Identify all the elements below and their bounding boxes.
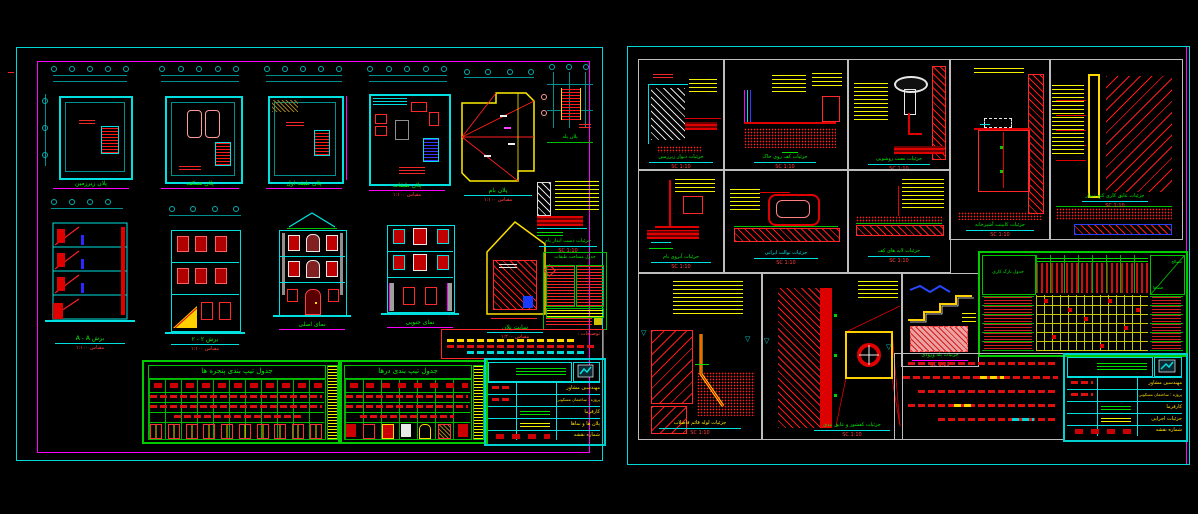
tb-consultant: مهندسین مشاور — [1140, 380, 1182, 386]
floor-line — [387, 277, 453, 278]
wall-hatch — [778, 288, 820, 428]
toilet-inner — [776, 200, 810, 218]
row-line — [148, 412, 324, 413]
caption-underline — [814, 430, 890, 431]
dim-text-row — [150, 395, 322, 398]
mark-cell — [1068, 308, 1072, 312]
layer-hatch — [856, 225, 944, 236]
floor-line — [171, 262, 239, 263]
caption-text: پلان بام — [462, 187, 534, 194]
area-col-group — [546, 265, 575, 307]
slab-line — [744, 122, 836, 124]
tb-line — [556, 382, 557, 440]
window — [437, 255, 449, 270]
layer-line — [856, 223, 942, 224]
corner-cell: مصالح فضاها — [1150, 255, 1185, 295]
caption-underline — [279, 329, 345, 330]
door-box — [201, 302, 213, 320]
mark-cell — [1100, 344, 1104, 348]
caption-text: برش A - A — [53, 335, 127, 342]
caption-underline — [754, 162, 816, 163]
leader-text — [1052, 84, 1084, 154]
caption-underline — [1082, 201, 1148, 202]
detail-soil-pipe: ▽ ▽ جزئیات لوله قائم فاضلاب SC 1:10 — [638, 273, 763, 440]
window-icon — [239, 424, 251, 439]
door-box — [219, 302, 231, 320]
ceiling-line — [651, 242, 671, 243]
tb-line — [1067, 425, 1182, 426]
caption-scale: SC 1:10 — [964, 232, 1036, 238]
room-label-marks — [79, 118, 95, 124]
window-table-title: جدول تیپ بندی پنجره ها — [149, 366, 325, 377]
detail-caption: جزئیات توالت ایرانی SC 1:10 — [752, 250, 820, 266]
water-level-symbol: ▽ — [641, 330, 646, 336]
right-sheet: جزئیات دیوار زیرزمین SC 1:10 جزئیات کف ر… — [627, 46, 1190, 465]
slab — [647, 230, 699, 239]
caption-text: جزئیات کفشور و عایق بندی — [812, 422, 892, 429]
grid-bubbles — [159, 66, 239, 72]
side-window — [287, 289, 298, 302]
leader-text — [962, 312, 976, 322]
frame-line — [648, 84, 649, 144]
mark-cell — [1084, 317, 1088, 321]
detail-kitchen-cabinet: جزئیات کابینت آشپزخانه SC 1:10 — [949, 59, 1051, 240]
row-line — [344, 422, 470, 423]
window-icon — [274, 424, 286, 439]
stair-block — [101, 126, 119, 154]
notes-block — [894, 353, 1065, 440]
grid-bubbles — [42, 98, 47, 158]
tb-drawing: جزئیات اجرایی — [1140, 416, 1182, 422]
caption-underline — [868, 256, 930, 257]
furniture — [375, 126, 387, 136]
caption-scale: SC 1:10 — [752, 260, 820, 266]
title-cell-text — [1097, 362, 1147, 370]
door-icon — [382, 424, 394, 439]
consultant-logo-icon — [1155, 358, 1179, 374]
cabinet-door-split — [1003, 132, 1004, 188]
tb-line — [1067, 377, 1182, 378]
count-row — [360, 415, 454, 418]
dim-line — [266, 81, 342, 82]
floor-line — [171, 294, 239, 295]
note-highlight-cyan — [1012, 418, 1034, 421]
layer-line — [747, 90, 748, 124]
detail-corner-insulation: جزئیات عایق کاری کنج دیوار SC 1:10 — [1049, 59, 1183, 240]
caption-text: نمای اصلی — [277, 321, 347, 328]
elevation-rear: نمای جنوبی — [373, 211, 467, 337]
caption-text: پلان همکف — [159, 180, 241, 187]
stair-block — [314, 130, 330, 156]
caption-text: جزئیات توالت ایرانی — [752, 250, 820, 257]
plan-caption: پلان بام مقیاس ۱:۱۰۰ — [462, 187, 534, 203]
plan-caption: پلان طبقه اول — [264, 180, 344, 190]
plan-caption: پلان زیرزمین — [51, 180, 131, 190]
logo-box — [573, 362, 600, 382]
car-outline — [187, 110, 202, 138]
window-icon — [310, 424, 322, 439]
leader-text — [812, 72, 842, 86]
furniture — [429, 112, 439, 126]
wall-face — [1088, 74, 1100, 198]
grid-bubbles — [464, 69, 534, 75]
tb-consultant: مهندسین مشاور — [558, 385, 600, 391]
finish-table-title: جدول نازک کاری — [985, 270, 1031, 276]
window-box — [215, 268, 227, 284]
window-table-titlebox: جدول تیپ بندی پنجره ها — [148, 365, 326, 379]
plan-caption: پلان همکف — [159, 180, 241, 190]
ground-marks — [649, 246, 673, 249]
dim-line — [161, 75, 239, 76]
leader-riser — [898, 186, 899, 216]
stair-flight — [173, 304, 199, 330]
caption-underline — [464, 195, 532, 196]
leader-text — [974, 65, 1024, 73]
column — [447, 283, 452, 311]
lower-window — [425, 287, 437, 305]
grid-bubbles — [51, 199, 111, 205]
dim-line — [53, 81, 127, 82]
notes-box: توضیحات : — [441, 329, 604, 359]
section-a-a: برش A - A مقیاس ۱:۱۰۰ — [37, 199, 147, 351]
kitchen-counter — [373, 98, 407, 105]
caption-text: جزئیات کف روی خاک — [752, 154, 818, 161]
leader-line — [760, 192, 790, 193]
side-window — [328, 289, 339, 302]
door-icon — [346, 424, 356, 437]
plan-roof: پلان بام مقیاس ۱:۱۰۰ — [456, 69, 541, 199]
window-box — [177, 236, 189, 252]
drain-pipe-elbow — [908, 133, 922, 135]
stone-block — [910, 326, 968, 352]
detail-caption: جزئیات کابینت آشپزخانه SC 1:10 — [964, 222, 1036, 238]
slab — [894, 146, 944, 154]
row-label-column — [473, 365, 484, 440]
gutter-line — [655, 226, 699, 228]
tb-value-chips — [1071, 429, 1131, 434]
section-caption: برش ۲ - ۲ مقیاس ۱:۱۰۰ — [169, 336, 241, 352]
leader-line — [1056, 160, 1086, 161]
plan-typical: پلان طبقات مقیاس ۱:۱۰۰ — [359, 66, 455, 198]
type-chips-row — [346, 383, 468, 388]
grid-line — [585, 72, 586, 128]
floor-stipple — [958, 212, 1042, 220]
rowlabel-left-text — [984, 297, 1032, 349]
tb-line — [516, 382, 517, 440]
row-line — [344, 412, 470, 413]
window-icon — [221, 424, 233, 439]
elevation-caption: نمای اصلی — [277, 321, 347, 331]
notes-line — [447, 339, 577, 342]
margin-mark — [8, 70, 14, 73]
step-block — [822, 96, 840, 122]
caption-underline — [53, 188, 129, 189]
dim-line — [53, 75, 127, 76]
tb-line — [1067, 413, 1182, 414]
detail-floor-on-grade: جزئیات کف روی خاک SC 1:10 — [723, 59, 849, 171]
drain-plan — [832, 302, 902, 432]
caption-underline — [369, 190, 445, 191]
logo-box — [1154, 357, 1182, 377]
note-line — [908, 362, 1058, 365]
window — [326, 261, 338, 277]
title-cell-text — [516, 367, 566, 375]
leader-text — [689, 78, 717, 92]
tb-sheetno: شماره نقشه — [1140, 427, 1182, 433]
entry-block — [523, 296, 533, 308]
cornice-line — [287, 228, 337, 229]
caption-text: برش ۲ - ۲ — [169, 336, 241, 343]
caption-text: جزئیات لوله قائم فاضلاب — [657, 420, 743, 427]
detail-floor-drain: ▽ ▽ جزئیات کفشور و عایق بندی SC 1:10 — [761, 273, 903, 440]
tb-value — [492, 398, 512, 401]
caption-underline — [966, 230, 1034, 231]
section-drawing — [37, 219, 147, 331]
tb-project: پروژه : ساختمان مسکونی — [556, 397, 600, 403]
caption-text: جزئیات لایه های کف — [866, 248, 932, 255]
yellow-cell — [594, 318, 602, 325]
plan-caption: پلان طبقات مقیاس ۱:۱۰۰ — [367, 182, 447, 198]
area-total-row2 — [546, 318, 592, 325]
tb-project: پروژه : ساختمان مسکونی — [1138, 392, 1182, 398]
footing-hatch — [1074, 224, 1172, 235]
tb-sheetno: شماره نقشه — [558, 432, 600, 438]
dim-marks — [653, 74, 673, 78]
diagonal-hatch — [1106, 76, 1172, 192]
detail-caption: جزئیات کفشور و عایق بندی SC 1:10 — [812, 422, 892, 438]
door-knob — [315, 302, 317, 304]
leader-text — [858, 280, 898, 298]
title-block: مهندسین مشاور پروژه : ساختمان مسکونی کار… — [484, 358, 606, 446]
caption-scale: SC 1:10 — [1080, 203, 1150, 209]
door-icon — [458, 424, 468, 437]
dim-line — [266, 75, 342, 76]
dim-line — [169, 215, 241, 216]
detail-washbasin: جزئیات نصب روشویی SC 1:10 — [847, 59, 951, 171]
caption-text: پلان زیرزمین — [51, 180, 131, 187]
caption-text: جزئیات نصب روشویی — [866, 156, 932, 163]
entry-marks — [179, 164, 201, 170]
tb-value-chips — [492, 434, 550, 439]
slab-line — [537, 228, 587, 229]
caption-text: پلان پله — [545, 134, 595, 141]
caption-scale: SC 1:10 — [649, 264, 713, 270]
caption-underline — [171, 344, 239, 345]
entry-marks — [399, 166, 425, 174]
mark-cell — [1136, 308, 1140, 312]
consultant-logo-icon — [574, 363, 597, 379]
grid-line — [553, 72, 554, 128]
tb-line — [488, 382, 600, 383]
leader-text — [675, 176, 715, 192]
column — [389, 283, 394, 311]
window-box — [195, 236, 207, 252]
caption-text: پلان طبقه اول — [264, 180, 344, 187]
caption-underline — [547, 142, 593, 143]
car-outline — [205, 110, 220, 138]
tb-value — [520, 421, 550, 427]
entry-door — [305, 289, 321, 315]
hinge-dot — [1000, 170, 1003, 173]
window-icon — [203, 424, 215, 439]
caption-underline — [649, 162, 713, 163]
window — [437, 229, 449, 244]
step-block — [683, 196, 703, 214]
green-marks — [695, 362, 709, 365]
dim-marks — [579, 124, 591, 128]
window-icon — [150, 424, 162, 439]
basin-pedestal — [904, 89, 916, 115]
notes-line — [467, 351, 587, 354]
dim-text-row — [150, 405, 322, 408]
note-highlight — [980, 376, 1004, 379]
slab-line — [685, 118, 721, 119]
tb-client: کارفرما — [1140, 404, 1182, 410]
leader-text — [902, 178, 944, 208]
title-block: مهندسین مشاور پروژه : ساختمان مسکونی کار… — [1063, 353, 1188, 442]
caption-scale: SC 1:10 — [812, 432, 892, 438]
caption-scale: مقیاس ۱:۱۰۰ — [367, 192, 447, 198]
drain-pipe — [908, 113, 910, 133]
slab-hatch — [734, 228, 840, 242]
tb-drawing: پلان ها و نماها — [558, 421, 600, 427]
soil-stipple — [657, 146, 701, 153]
plan-basement: پلان زیرزمین — [41, 66, 141, 198]
caption-underline — [55, 343, 125, 344]
caption-underline — [387, 327, 453, 328]
dim-line — [51, 208, 123, 209]
window-box — [177, 268, 189, 284]
stair-detail-plan: پلان پله — [541, 64, 599, 154]
caption-scale: SC 1:10 — [657, 430, 743, 436]
pediment — [289, 211, 335, 228]
row-line — [148, 402, 324, 403]
mark-cell — [1044, 299, 1048, 303]
gutter-wall — [669, 180, 671, 226]
count-row — [174, 415, 304, 418]
area-table-title: جدول مساحت طبقات — [546, 255, 604, 261]
note-line — [918, 390, 1058, 393]
pink-bubbles — [541, 94, 546, 116]
window-icons-row — [150, 424, 322, 437]
window — [413, 228, 427, 245]
stair-block — [423, 138, 439, 162]
slab-stipple — [744, 128, 836, 148]
caption-text: پلان طبقات — [367, 182, 447, 189]
finish-table: جدول نازک کاری مصالح فضاها — [978, 251, 1188, 357]
detail-caption: جزئیات آبروی بام SC 1:10 — [649, 254, 713, 270]
dim-text-row — [346, 395, 468, 398]
caption-text: جزئیات آبروی بام — [649, 254, 713, 261]
wall-hatch — [537, 182, 551, 216]
caption-scale: مقیاس ۱:۱۰۰ — [169, 346, 241, 352]
caption-text: جزئیات عایق کاری کنج دیوار — [1080, 193, 1150, 200]
elevation-front: نمای اصلی — [265, 209, 359, 339]
row-line — [344, 402, 470, 403]
wall-hatch — [651, 88, 685, 140]
window — [288, 261, 300, 277]
pilaster — [282, 233, 285, 295]
floor-line — [279, 282, 345, 283]
green-dot — [834, 314, 837, 317]
furniture — [411, 102, 427, 112]
caption-underline — [659, 428, 741, 429]
caption-text: جزئیات دیوار زیرزمین — [647, 154, 715, 161]
arched-window — [306, 234, 320, 252]
door-icon — [401, 424, 411, 437]
hatch-zone — [272, 100, 298, 112]
caption-underline — [651, 262, 711, 263]
site-dims — [491, 316, 537, 319]
wall-core — [820, 288, 832, 428]
type-chips-row — [150, 383, 322, 388]
table — [395, 120, 409, 140]
mark-cell — [1052, 335, 1056, 339]
layer-line — [750, 90, 751, 124]
caption-text: جزئیات دست انداز بام — [537, 238, 599, 245]
area-total-row — [546, 308, 604, 318]
note-line — [908, 404, 1058, 407]
leader-text — [673, 280, 743, 314]
layer-line — [744, 90, 745, 124]
tb-value — [1071, 381, 1093, 384]
caption-underline — [161, 188, 239, 189]
roof-drawing — [456, 85, 541, 185]
floor-line — [734, 226, 838, 227]
tb-line — [1137, 377, 1138, 436]
window — [288, 235, 300, 251]
green-dot — [834, 354, 837, 357]
tb-value — [492, 386, 512, 389]
mark-cell — [1108, 299, 1112, 303]
window — [393, 255, 405, 270]
floor-line — [387, 251, 453, 252]
lower-window — [403, 287, 415, 305]
leader-text — [854, 80, 888, 120]
sink-dashed — [984, 118, 1012, 128]
tb-line — [1067, 401, 1182, 402]
pilaster — [340, 233, 343, 295]
floor-stipple — [1056, 208, 1172, 220]
dim-line — [161, 81, 239, 82]
left-sheet: پلان زیرزمین پلان همکف پلان طبقه اول — [16, 47, 603, 461]
plan-first: پلان طبقه اول — [256, 66, 350, 198]
tb-value — [1071, 393, 1093, 396]
dim-line — [369, 75, 447, 76]
stair-treads — [561, 88, 581, 120]
backsplash — [980, 124, 990, 125]
ground-line — [165, 332, 245, 334]
site-text-marks — [499, 264, 517, 268]
header-col-lines — [1036, 255, 1148, 293]
plan-ground: پلان همکف — [151, 66, 249, 198]
leader-text — [555, 180, 599, 210]
corner-materials: مصالح — [1171, 259, 1182, 265]
window — [413, 254, 427, 271]
door-table-titlebox: جدول تیپ بندی درها — [344, 365, 472, 379]
door-icon — [363, 424, 375, 439]
door-table-title: جدول تیپ بندی درها — [345, 366, 471, 377]
detail-caption: جزئیات عایق کاری کنج دیوار SC 1:10 — [1080, 193, 1150, 209]
tb-value — [1101, 416, 1131, 422]
caption-text: جزئیات کابینت آشپزخانه — [964, 222, 1036, 229]
slab — [685, 122, 717, 130]
detail-squat-toilet: جزئیات توالت ایرانی SC 1:10 — [723, 169, 849, 273]
green-dot — [834, 394, 837, 397]
row-line — [148, 422, 324, 423]
slab — [537, 216, 583, 226]
door-table: جدول تیپ بندی درها — [338, 360, 488, 444]
